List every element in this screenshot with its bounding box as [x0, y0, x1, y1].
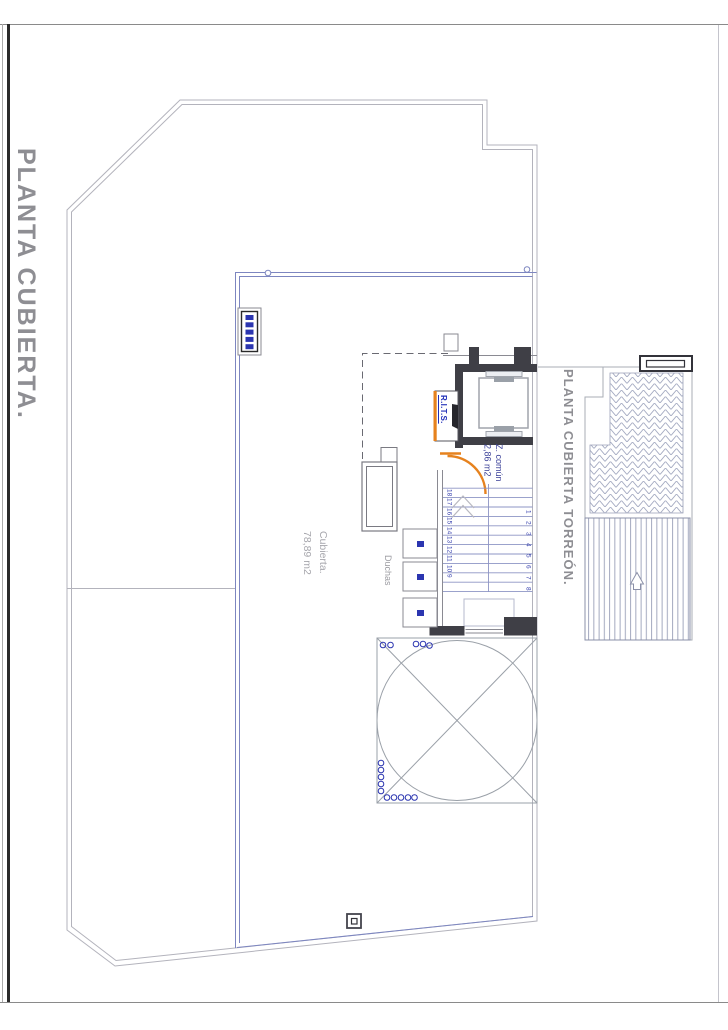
- tile-hatch: [590, 373, 683, 513]
- stair-step-number: 9: [446, 574, 453, 578]
- duchas-label: Duchas: [383, 555, 393, 586]
- stair-step-number: 10: [446, 565, 453, 572]
- stair-step-number: 13: [446, 536, 453, 543]
- cubierta-area-value: 78,89 m2: [299, 531, 315, 575]
- stair-step-number: 4: [525, 543, 532, 547]
- stair-step-number: 5: [525, 554, 532, 558]
- stair-step-number: 17: [446, 498, 453, 505]
- elevator-car: [479, 378, 528, 428]
- vent-grille: [238, 308, 261, 355]
- cubierta-area-label: Cubierta. 78,89 m2: [299, 531, 331, 575]
- stair-step-number: 3: [525, 532, 532, 536]
- skylight-void: [377, 638, 537, 803]
- stair-step-number: 7: [525, 576, 532, 580]
- stair-step-number: 8: [525, 587, 532, 591]
- stair-step-number: 18: [446, 489, 453, 496]
- stair-step-number: 6: [525, 565, 532, 569]
- z-comun-area-value: 2,86 m2: [481, 444, 493, 482]
- cabinet-door-leaf: [452, 404, 458, 429]
- stair-step-number: 2: [525, 521, 532, 525]
- stair-step-number: 15: [446, 517, 453, 524]
- floorplan-page: PLANTA CUBIERTA. PLANTA CUBIERTA TORREÓN…: [0, 0, 728, 1030]
- floorplan-drawing: [0, 0, 728, 1030]
- z-comun-label: Z. común 2,86 m2: [481, 444, 504, 482]
- stair-step-number: 12: [446, 546, 453, 553]
- shower-trays: [403, 529, 437, 627]
- torreon-title: PLANTA CUBIERTA TORREÓN.: [561, 369, 576, 586]
- stair-step-number: 1: [525, 510, 532, 514]
- z-comun-name: Z. común: [493, 444, 505, 482]
- stair-step-number: 16: [446, 508, 453, 515]
- stair-step-number: 11: [446, 555, 453, 562]
- cubierta-name: Cubierta.: [315, 531, 331, 575]
- roof-drain: [347, 914, 361, 928]
- plan-title: PLANTA CUBIERTA.: [11, 148, 40, 420]
- stair-step-number: 14: [446, 527, 453, 534]
- fixing-rings: [378, 641, 432, 800]
- bench-box: [362, 448, 397, 532]
- rits-label: R.I.T.S.: [439, 395, 448, 424]
